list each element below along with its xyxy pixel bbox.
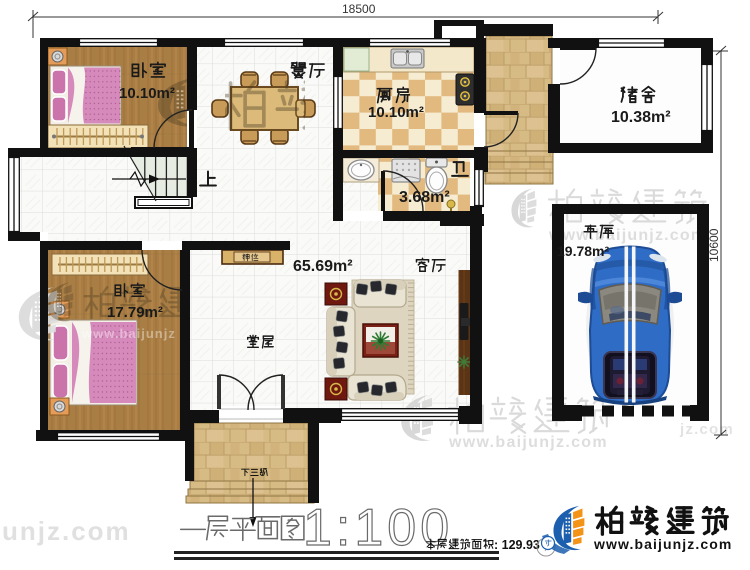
svg-text:10.38m²: 10.38m²	[611, 109, 671, 126]
svg-text:65.69m²: 65.69m²	[293, 258, 353, 275]
svg-text:www.baijunjz.com: www.baijunjz.com	[448, 434, 608, 451]
svg-text:www.baijunjz.com: www.baijunjz.com	[548, 227, 706, 244]
svg-text:10.10m²: 10.10m²	[119, 85, 175, 102]
svg-text:10600: 10600	[707, 228, 721, 262]
svg-text:17.79m²: 17.79m²	[107, 304, 163, 321]
svg-text:10.10m²: 10.10m²	[368, 104, 424, 121]
svg-text:18500: 18500	[342, 2, 376, 16]
svg-text:unjz.com: unjz.com	[2, 516, 131, 546]
svg-text:3.68m²: 3.68m²	[399, 189, 450, 206]
svg-text:19.78m²: 19.78m²	[557, 243, 609, 259]
svg-text:www.baijunjz.com: www.baijunjz.com	[593, 536, 732, 552]
svg-text:www.baijunjz: www.baijunjz	[81, 326, 176, 341]
svg-text:: 129.93: : 129.93	[494, 538, 540, 552]
